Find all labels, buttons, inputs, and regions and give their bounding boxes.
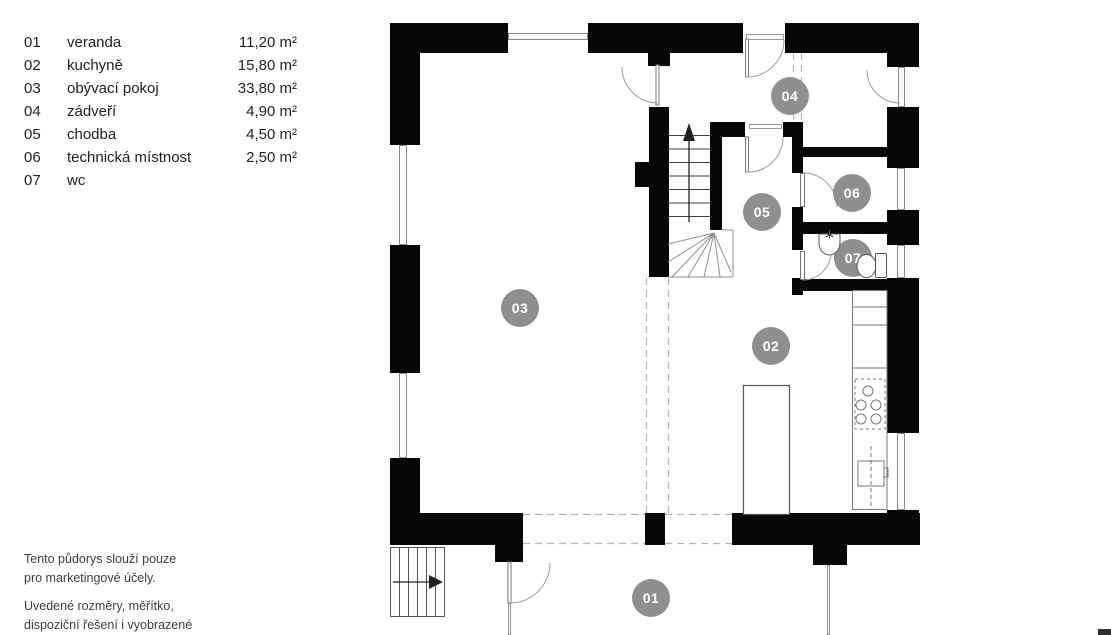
sink-icon xyxy=(819,230,840,255)
corner-mark xyxy=(1098,629,1111,635)
floorplan-page: 01 veranda 11,20 m² 02 kuchyně 15,80 m² … xyxy=(0,0,1111,635)
floor-plan: 01 02 03 04 05 06 07 xyxy=(0,0,1111,635)
plan-fixtures xyxy=(0,0,1111,635)
toilet-icon xyxy=(857,254,887,278)
